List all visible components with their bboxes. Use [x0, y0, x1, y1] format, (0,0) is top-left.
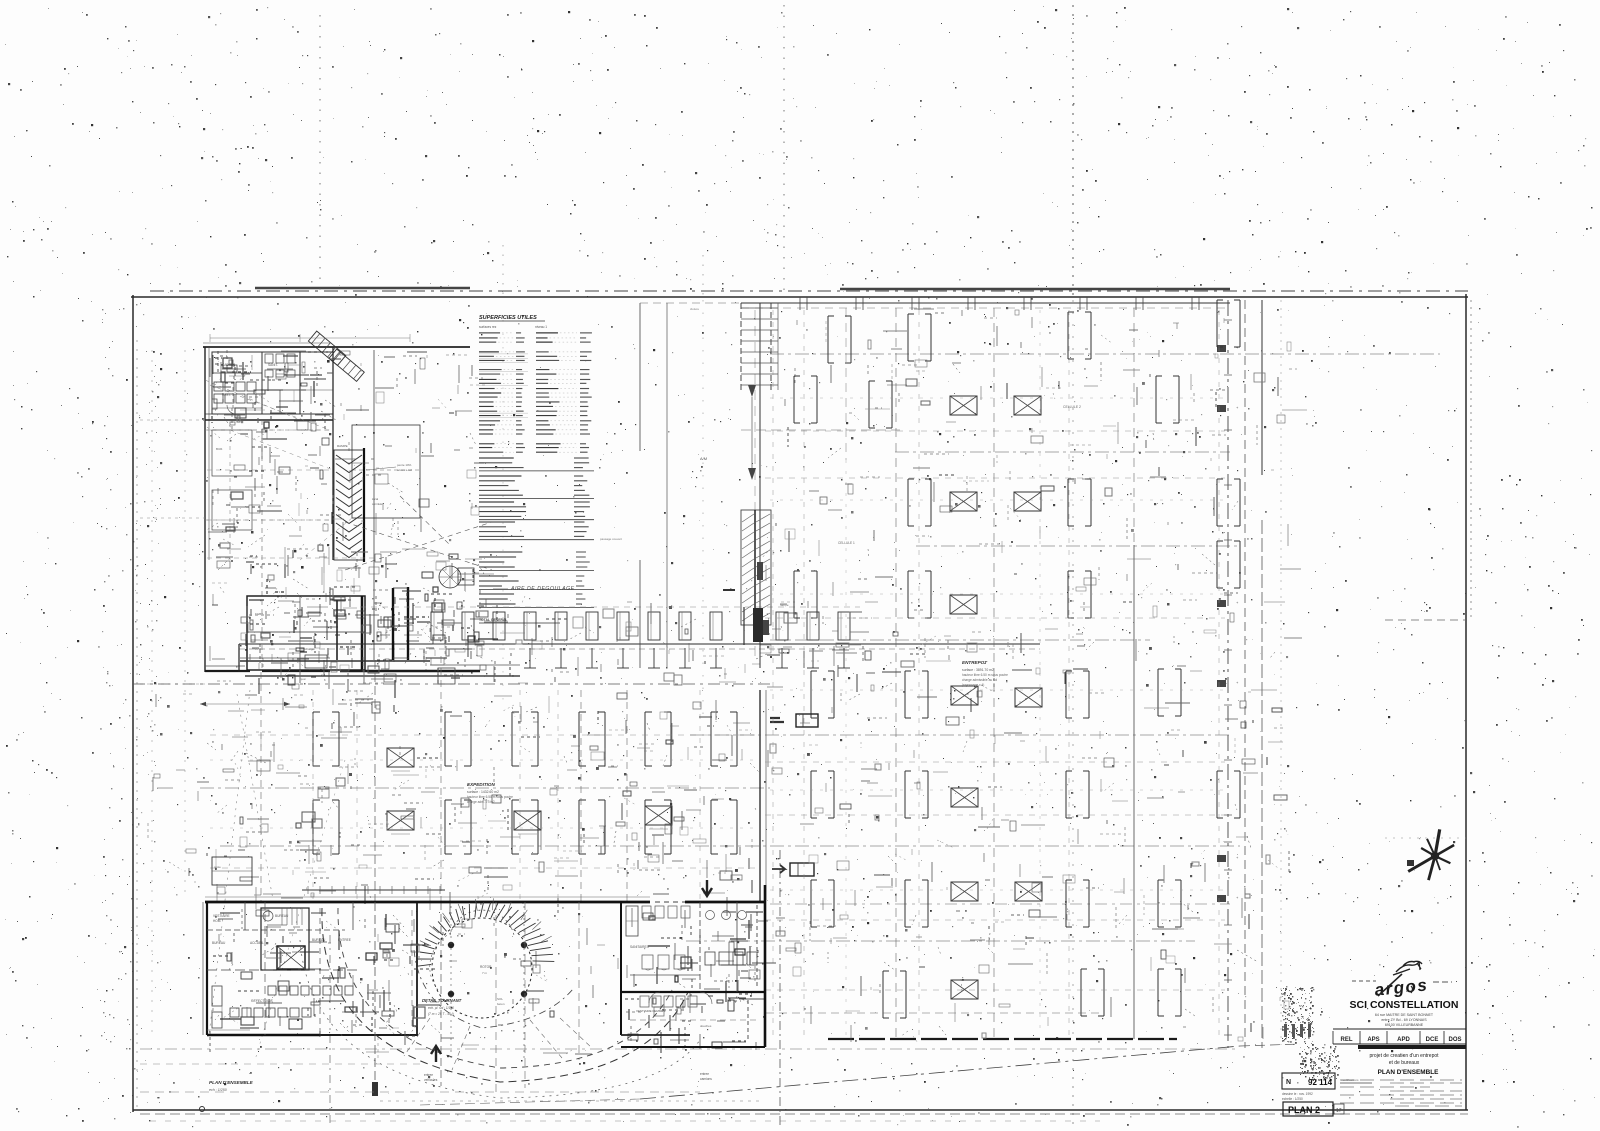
svg-text:CELLULE 2: CELLULE 2: [1063, 405, 1081, 409]
svg-text:acces s-sol: acces s-sol: [397, 468, 412, 472]
svg-text:+: +: [1236, 680, 1239, 685]
svg-text:CELLULE 1: CELLULE 1: [838, 541, 855, 545]
svg-text:SUPERFICIES UTILES: SUPERFICIES UTILES: [479, 315, 537, 321]
svg-text:(rayonnage x 4): (rayonnage x 4): [962, 683, 984, 687]
svg-text:RAMPE: RAMPE: [337, 444, 348, 448]
svg-text:pente 10%: pente 10%: [397, 463, 412, 467]
svg-text:SANIT.: SANIT.: [268, 363, 278, 367]
svg-text:+: +: [1236, 405, 1239, 410]
svg-text:hauteur libre 6.50 m sous pout: hauteur libre 6.50 m sous poutre: [962, 673, 1008, 677]
svg-text:rampe: rampe: [780, 603, 789, 607]
svg-text:charge admissible au sol: charge admissible au sol: [962, 678, 997, 682]
svg-text:poste: poste: [214, 865, 221, 869]
svg-text:niveau 1: niveau 1: [535, 325, 547, 329]
svg-text:cloture: cloture: [690, 307, 699, 311]
svg-text:charge adm. 2T/m2: charge adm. 2T/m2: [467, 800, 495, 804]
svg-text:surfaces rez: surfaces rez: [479, 325, 497, 329]
svg-text:passage couvert: passage couvert: [600, 537, 622, 541]
svg-text:EXPEDITION: EXPEDITION: [467, 782, 496, 787]
svg-text:BUR.: BUR.: [216, 447, 223, 451]
svg-text:sprinkler: sprinkler: [372, 502, 383, 506]
svg-text:hauteur libre 6.50 m sous pout: hauteur libre 6.50 m sous poutre: [467, 795, 513, 799]
svg-text:ENTREPOT: ENTREPOT: [962, 660, 988, 665]
svg-text:AIRE DE DEGOULAGE: AIRE DE DEGOULAGE: [510, 586, 575, 592]
svg-text:surface : 1432.60 m2: surface : 1432.60 m2: [467, 790, 499, 794]
svg-text:+: +: [1236, 895, 1239, 900]
svg-text:local: local: [372, 497, 379, 501]
svg-text:+: +: [1236, 855, 1239, 860]
svg-text:+: +: [1236, 600, 1239, 605]
svg-text:A/M: A/M: [700, 456, 707, 461]
svg-text:quai: quai: [300, 677, 306, 681]
svg-text:surface : 3891.70 m2: surface : 3891.70 m2: [962, 668, 994, 672]
